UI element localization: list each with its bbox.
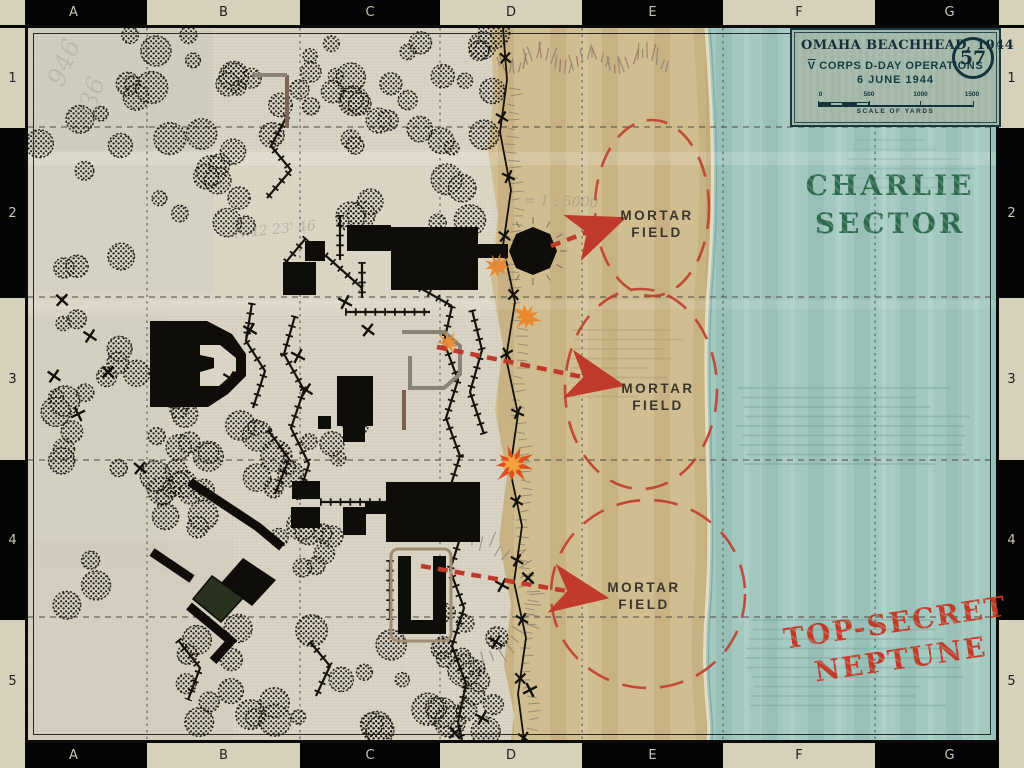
row-label: 4 [1007,533,1015,548]
col-label: B [219,5,228,20]
row-label: 5 [1007,674,1015,689]
mortar-field-label: MORTAR FIELD [593,380,723,414]
mortar-field-label: MORTAR FIELD [579,579,709,613]
col-label: E [648,5,656,20]
row-label: 1 [8,71,16,86]
col-label: C [365,748,374,763]
row-label: 4 [8,533,16,548]
ruler-corner [999,743,1024,768]
map-number: 57 [960,47,986,69]
sector-stamp-line1: CHARLIE [782,167,998,205]
ruler-corner [0,0,25,25]
corps-numeral: V [808,60,816,72]
col-label: F [795,748,802,763]
col-label: D [506,748,516,763]
map-number-badge: 57 [952,37,994,79]
map-legend-box: OMAHA BEACHHEAD, 1944 57 V CORPS D-DAY O… [790,28,1001,127]
col-label: G [944,5,954,20]
pencil-note: = 1 : 5000 [524,193,599,212]
scale-tick-label: 0 [819,91,823,98]
col-label: G [944,748,954,763]
row-label: 3 [8,372,16,387]
col-label: A [69,5,78,20]
scale-bar: 0 500 1000 1500 SCALE OF YARDS [818,91,974,115]
ruler-corner [999,0,1024,25]
sector-stamp: CHARLIE SECTOR [782,167,998,243]
scale-tick-label: 1000 [913,91,927,98]
scale-caption: SCALE OF YARDS [818,108,974,115]
col-label: F [795,5,802,20]
map-screen: A B C D E F G A B C D E F G 1 2 3 4 5 1 … [0,0,1024,768]
col-label: E [648,748,656,763]
scale-tick-label: 1500 [965,91,979,98]
row-label: 2 [8,206,16,221]
row-label: 1 [1007,71,1015,86]
scale-tick-label: 500 [864,91,875,98]
col-label: B [219,748,228,763]
row-label: 5 [8,674,16,689]
sector-stamp-line2: SECTOR [782,205,998,243]
row-label: 3 [1007,372,1015,387]
scale-bar-line [818,100,974,107]
col-label: D [506,5,516,20]
mortar-field-label: MORTAR FIELD [592,207,722,241]
col-label: C [365,5,374,20]
row-label: 2 [1007,206,1015,221]
col-label: A [69,748,78,763]
ruler-corner [0,743,25,768]
